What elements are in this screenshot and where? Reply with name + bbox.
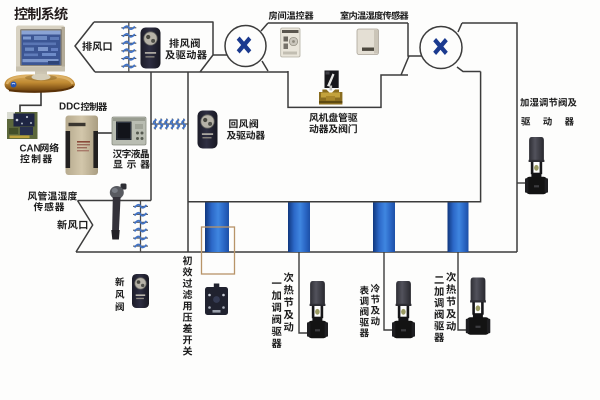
svg-text:DDC: DDC: [59, 102, 80, 113]
svg-text:CAN: CAN: [20, 143, 41, 154]
